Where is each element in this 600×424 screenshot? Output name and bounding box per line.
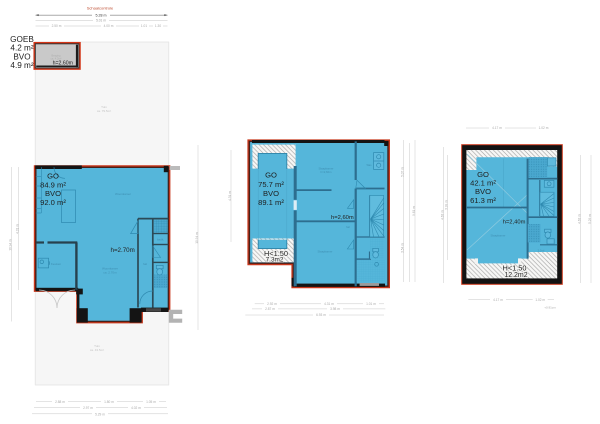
svg-text:hal: hal: [346, 225, 350, 229]
svg-text:92.0 m²: 92.0 m²: [40, 198, 66, 207]
svg-text:H<1.50: H<1.50: [502, 263, 526, 272]
svg-text:4.31 m: 4.31 m: [16, 224, 20, 234]
svg-text:h=2.60m: h=2.60m: [53, 60, 73, 66]
svg-text:GO: GO: [47, 172, 59, 181]
svg-text:ca. 2.70m: ca. 2.70m: [103, 271, 117, 275]
svg-text:Slaapkamer: Slaapkamer: [318, 250, 333, 254]
svg-text:hal: hal: [143, 262, 147, 266]
svg-text:h=2.70m: h=2.70m: [111, 247, 135, 254]
svg-text:75.7 m²: 75.7 m²: [258, 180, 284, 189]
svg-text:2.2m²: 2.2m²: [538, 249, 545, 253]
svg-text:89.1 m²: 89.1 m²: [258, 198, 284, 207]
svg-text:4.17 m: 4.17 m: [493, 298, 503, 302]
svg-text:5.28 m: 5.28 m: [96, 14, 107, 18]
svg-text:2.92 m: 2.92 m: [267, 302, 277, 306]
svg-text:GOEB: GOEB: [10, 35, 34, 44]
svg-text:h=2,60m: h=2,60m: [331, 215, 354, 221]
svg-text:1.01: 1.01: [141, 24, 147, 28]
svg-text:Schaalcontrole: Schaalcontrole: [87, 6, 114, 11]
svg-text:2.50 m: 2.50 m: [52, 24, 62, 28]
svg-text:h=2,60m: h=2,60m: [321, 170, 333, 174]
svg-text:BVO: BVO: [475, 187, 491, 196]
svg-text:4.9 m²: 4.9 m²: [10, 61, 33, 70]
svg-text:1.02 m: 1.02 m: [535, 298, 545, 302]
svg-text:5.29 m: 5.29 m: [95, 412, 105, 416]
svg-text:4.63 m: 4.63 m: [578, 214, 582, 224]
svg-text:4.31 m: 4.31 m: [324, 302, 334, 306]
svg-text:2.88 m: 2.88 m: [55, 400, 65, 404]
svg-text:42.1 m²: 42.1 m²: [470, 178, 496, 187]
svg-text:2.97 m: 2.97 m: [83, 406, 93, 410]
svg-text:GO: GO: [265, 171, 277, 180]
svg-text:9.61 m: 9.61 m: [412, 206, 416, 216]
svg-text:badk.: badk.: [157, 238, 165, 242]
svg-text:1.30: 1.30: [155, 24, 161, 28]
svg-text:BVO: BVO: [13, 52, 30, 61]
svg-text:BVO: BVO: [263, 189, 279, 198]
svg-text:10.94 m: 10.94 m: [195, 232, 199, 244]
svg-text:ca. 79.5m²: ca. 79.5m²: [97, 109, 111, 113]
svg-text:4.17 m: 4.17 m: [492, 126, 502, 130]
svg-text:+0.91cm: +0.91cm: [544, 305, 556, 309]
svg-text:4.63 m: 4.63 m: [441, 210, 445, 220]
svg-text:12.2m2: 12.2m2: [504, 272, 527, 279]
svg-text:h=2,40m: h=2,40m: [503, 220, 526, 226]
svg-text:1.02 m: 1.02 m: [539, 126, 549, 130]
svg-text:5.07 m: 5.07 m: [401, 167, 405, 177]
svg-text:Slaapkamer: Slaapkamer: [491, 234, 506, 238]
svg-text:3.54 m: 3.54 m: [401, 243, 405, 253]
svg-text:84.9 m²: 84.9 m²: [40, 180, 66, 189]
svg-text:4.00 m: 4.00 m: [104, 24, 114, 28]
svg-text:5.29 m: 5.29 m: [588, 214, 592, 224]
svg-text:Keuken: Keuken: [51, 262, 62, 266]
svg-text:1.01 m: 1.01 m: [366, 302, 376, 306]
svg-text:Was: Was: [366, 163, 372, 167]
svg-text:10.94 m: 10.94 m: [8, 239, 12, 251]
svg-text:2.87 m: 2.87 m: [265, 307, 275, 311]
svg-text:1.05 m: 1.05 m: [146, 400, 156, 404]
svg-text:3.98 m: 3.98 m: [330, 307, 340, 311]
svg-text:Woonkamer: Woonkamer: [115, 192, 131, 196]
svg-text:ca. 43.5m²: ca. 43.5m²: [90, 348, 104, 352]
svg-text:4.2 m²: 4.2 m²: [10, 44, 33, 53]
svg-text:7.3m2: 7.3m2: [266, 257, 284, 264]
svg-text:1.80 m: 1.80 m: [104, 400, 114, 404]
svg-text:6.93 m: 6.93 m: [316, 313, 326, 317]
svg-text:5.01 m: 5.01 m: [96, 19, 106, 23]
svg-text:4.31 m: 4.31 m: [228, 191, 232, 201]
svg-text:4.02 m: 4.02 m: [131, 406, 141, 410]
svg-text:BVO: BVO: [45, 189, 61, 198]
svg-text:61.3 m²: 61.3 m²: [470, 196, 496, 205]
svg-text:3.99 m: 3.99 m: [445, 200, 449, 210]
